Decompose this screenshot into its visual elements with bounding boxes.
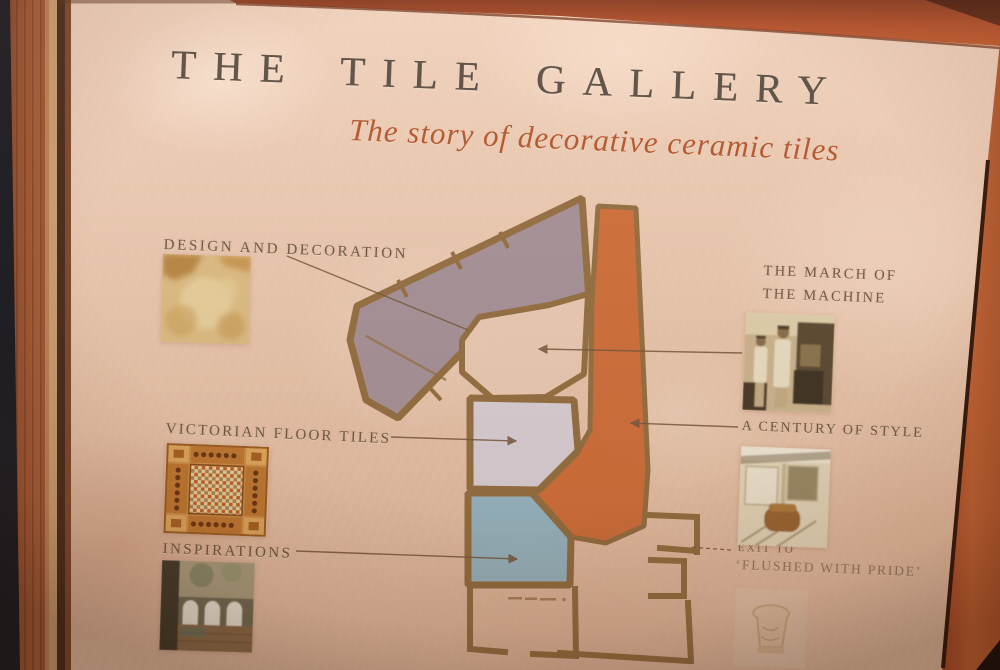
photograph-of-gallery-sign: THE TILE GALLERY The story of decorative… (0, 0, 1000, 670)
century-of-style-photo (737, 446, 831, 548)
label-march-of-the-machine: THE MARCH OF THE MACHINE (762, 260, 897, 311)
label-march-line1: THE MARCH OF (763, 263, 897, 284)
victorian-floor-tiles-image (163, 443, 270, 537)
march-of-the-machine-photo (742, 312, 835, 413)
design-and-decoration-tile-image (161, 254, 251, 344)
inspirations-image (159, 560, 255, 653)
flushed-with-pride-image (733, 588, 808, 668)
label-march-line2: THE MACHINE (762, 286, 886, 307)
